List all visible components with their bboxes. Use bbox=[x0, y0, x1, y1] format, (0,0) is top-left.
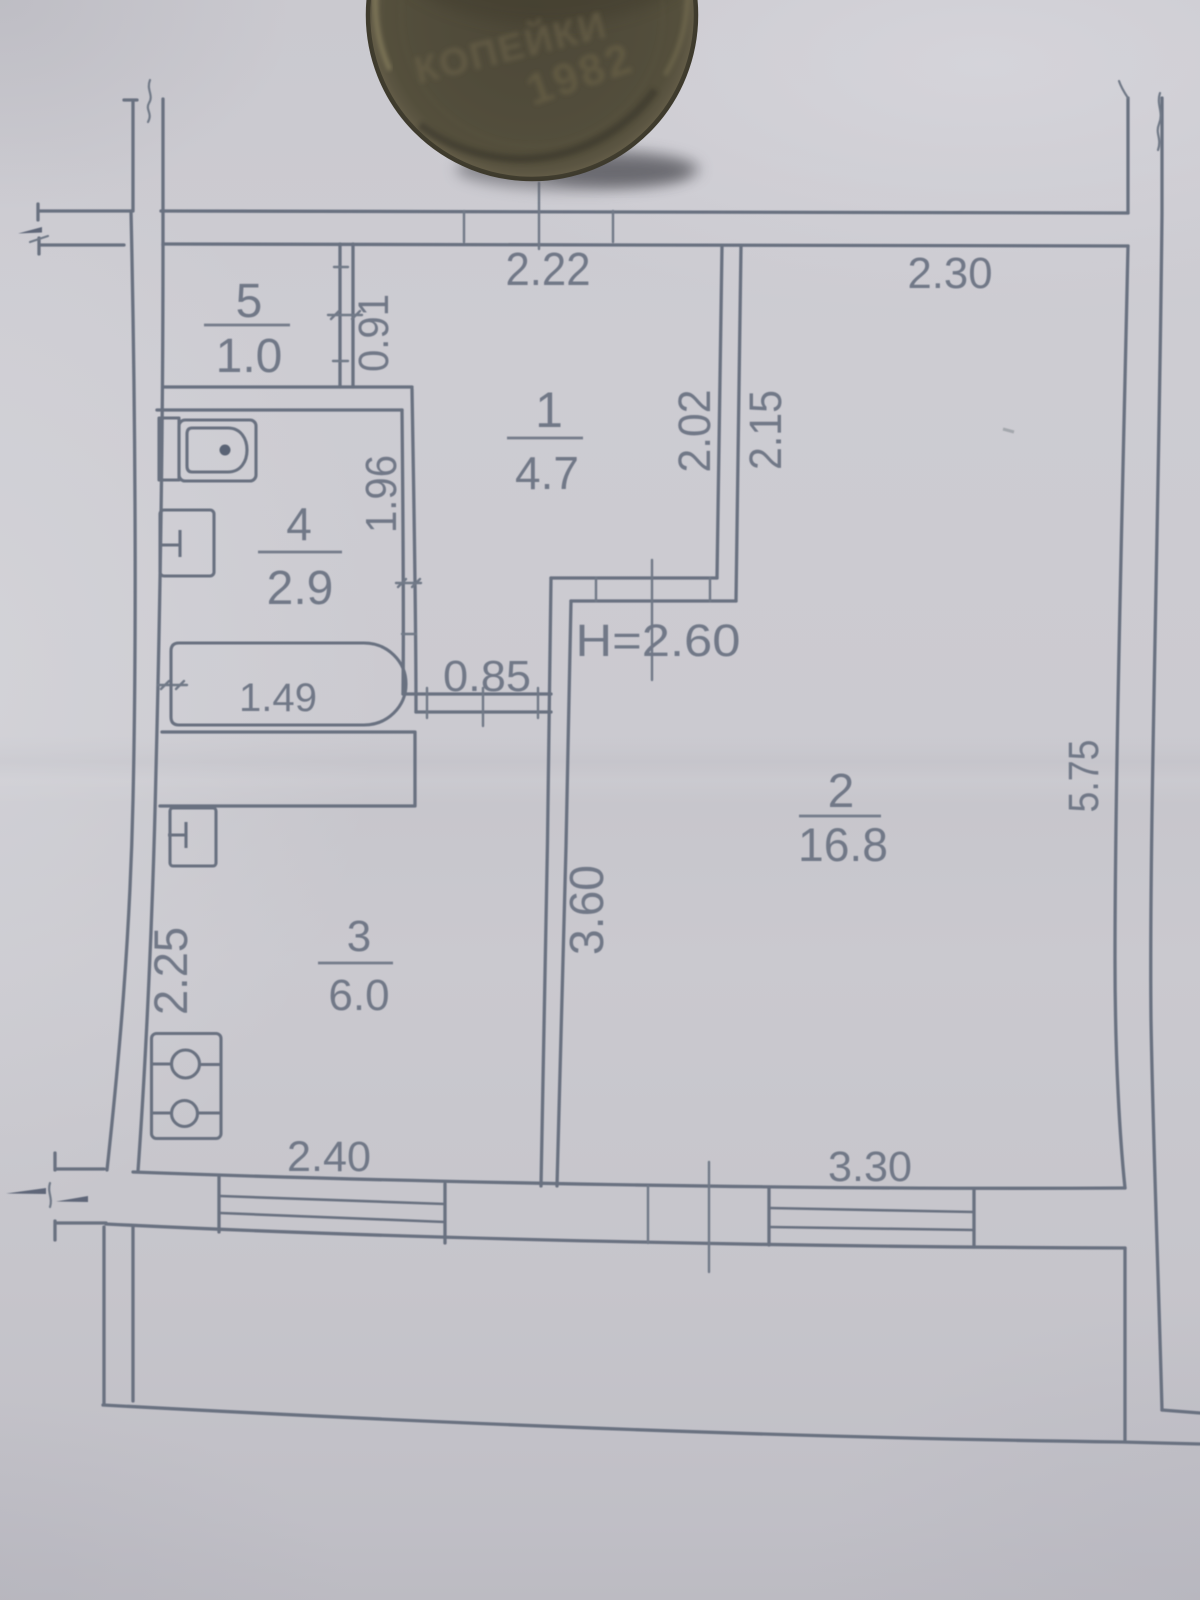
svg-text:2.9: 2.9 bbox=[267, 562, 334, 615]
svg-text:16.8: 16.8 bbox=[798, 818, 888, 871]
svg-text:1.0: 1.0 bbox=[216, 330, 283, 383]
svg-text:6.0: 6.0 bbox=[328, 971, 389, 1020]
svg-text:2.25: 2.25 bbox=[144, 927, 197, 1015]
svg-text:5: 5 bbox=[236, 275, 263, 328]
svg-text:0.85: 0.85 bbox=[443, 652, 531, 701]
svg-text:2: 2 bbox=[828, 765, 855, 818]
svg-text:1: 1 bbox=[535, 382, 563, 438]
svg-text:2.40: 2.40 bbox=[287, 1133, 371, 1181]
svg-text:1.49: 1.49 bbox=[239, 676, 317, 720]
svg-text:4: 4 bbox=[286, 498, 312, 550]
svg-text:3: 3 bbox=[347, 912, 371, 961]
svg-text:3.30: 3.30 bbox=[828, 1143, 912, 1191]
svg-text:2.30: 2.30 bbox=[908, 249, 993, 298]
svg-text:0.91: 0.91 bbox=[350, 294, 398, 372]
svg-text:3.60: 3.60 bbox=[561, 865, 614, 955]
svg-text:H=2.60: H=2.60 bbox=[576, 615, 741, 666]
svg-text:5.75: 5.75 bbox=[1060, 740, 1108, 813]
svg-text:2.02: 2.02 bbox=[669, 390, 720, 473]
svg-text:2.15: 2.15 bbox=[740, 390, 791, 470]
svg-text:2.22: 2.22 bbox=[506, 243, 591, 295]
svg-text:4.7: 4.7 bbox=[515, 447, 579, 499]
svg-text:1.96: 1.96 bbox=[357, 455, 406, 533]
